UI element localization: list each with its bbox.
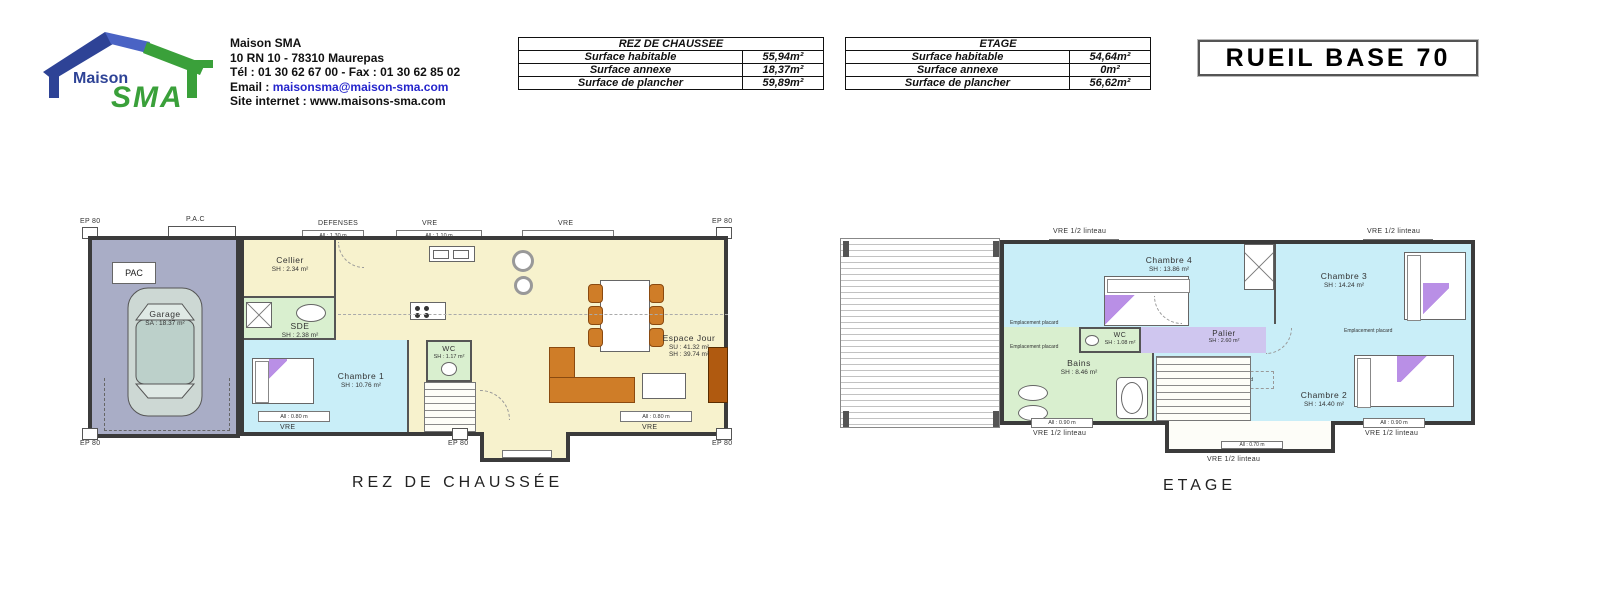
placard-label: Emplacement placard — [1010, 320, 1058, 326]
blanket-accent — [1397, 356, 1431, 382]
room-area: SH : 1.17 m² — [428, 354, 470, 360]
cellier-label: Cellier SH : 2.34 m² — [252, 256, 328, 273]
bed-icon — [252, 358, 314, 404]
row-label: Surface de plancher — [846, 77, 1070, 90]
row-label: Surface habitable — [846, 51, 1070, 64]
pac-unit-box: PAC — [112, 262, 156, 284]
row-value: 54,64m² — [1070, 51, 1151, 64]
company-name: Maison SMA — [230, 36, 490, 51]
wc-etage-label: WC SH : 1.08 m² — [1099, 332, 1141, 346]
garage-roof-hatch — [840, 238, 1000, 428]
light-fixture-icon — [512, 250, 534, 272]
bed-icon — [1404, 252, 1466, 320]
email-address: maisonsma@maison-sma.com — [273, 80, 449, 94]
room-area: SH : 13.86 m² — [1119, 266, 1219, 273]
tv-cabinet-icon — [708, 347, 728, 403]
stair-landing-bump: All : 0.70 m — [1165, 421, 1335, 453]
garage-room: PAC Garage SA : 18.37 m² — [88, 236, 240, 438]
room-name: Chambre 1 — [316, 372, 406, 382]
wc-room-etage: WC SH : 1.08 m² — [1079, 327, 1141, 353]
dining-table-icon — [600, 280, 650, 352]
stove-icon — [410, 302, 446, 320]
placard-label: Emplacement placard — [1344, 328, 1392, 334]
pillow-icon — [255, 361, 269, 403]
room-area: SH : 10.76 m² — [316, 382, 406, 389]
ep80-label: EP 80 — [448, 440, 468, 447]
chair-icon — [588, 284, 603, 303]
palier-room: Palier SH : 2.60 m² — [1141, 327, 1266, 353]
palier-label: Palier SH : 2.60 m² — [1189, 329, 1259, 345]
shower-icon — [246, 302, 272, 328]
chair-icon — [649, 284, 664, 303]
driveway-dashed — [104, 378, 230, 431]
ground-floor-plan: EP 80 P.A.C DEFENSES All : 1.30 m VRE Al… — [80, 218, 740, 458]
site-url: www.maisons-sma.com — [310, 94, 446, 108]
row-value: 0m² — [1070, 64, 1151, 77]
room-area: SH : 14.24 m² — [1294, 282, 1394, 289]
room-name: Chambre 4 — [1119, 256, 1219, 266]
logo-house-icon: Maison SMA — [35, 20, 230, 108]
row-label: Surface habitable — [519, 51, 743, 64]
sde-room: SDE SH : 2.38 m² — [244, 298, 336, 340]
post-marker — [843, 241, 849, 257]
dashed-guide — [338, 314, 728, 315]
wc-room: WC SH : 1.17 m² — [426, 340, 472, 382]
door-swing — [480, 390, 510, 420]
sde-label: SDE SH : 2.38 m² — [270, 322, 330, 339]
entry-door — [502, 450, 552, 458]
room-name: WC — [428, 345, 470, 354]
post-marker — [993, 241, 999, 257]
blanket-accent — [269, 359, 287, 381]
surface-table-etage: ETAGE Surface habitable54,64m² Surface a… — [845, 37, 1151, 90]
room-area: SH : 2.34 m² — [252, 266, 328, 273]
corner-marker — [452, 428, 468, 440]
chambre4-label: Chambre 4 SH : 13.86 m² — [1119, 256, 1219, 273]
staircase-etage — [1156, 356, 1251, 421]
chambre4-room: Chambre 4 SH : 13.86 m² — [1004, 244, 1274, 327]
burner — [424, 306, 429, 311]
ground-floor-caption: REZ DE CHAUSSÉE — [352, 474, 563, 492]
defenses-label: DEFENSES — [318, 220, 358, 227]
company-logo: Maison SMA — [35, 20, 230, 108]
company-info: Maison SMA 10 RN 10 - 78310 Maurepas Tél… — [230, 36, 490, 109]
vre-linteau-label: VRE 1/2 linteau — [1367, 228, 1420, 235]
row-value: 18,37m² — [743, 64, 824, 77]
row-value: 55,94m² — [743, 51, 824, 64]
ep80-label: EP 80 — [80, 218, 100, 225]
company-phone-fax: Tél : 01 30 62 67 00 - Fax : 01 30 62 85… — [230, 65, 490, 80]
site-label: Site internet : — [230, 94, 310, 108]
chambre3-label: Chambre 3 SH : 14.24 m² — [1294, 272, 1394, 289]
pillow-icon — [1357, 358, 1371, 408]
ep80-label: EP 80 — [712, 218, 732, 225]
company-site-line: Site internet : www.maisons-sma.com — [230, 94, 490, 109]
etage-plan: VRE 1/2 linteau All : 0.90 m VRE 1/2 lin… — [835, 228, 1495, 473]
room-area: SH : 1.08 m² — [1099, 340, 1141, 346]
vre-linteau-label: VRE 1/2 linteau — [1207, 456, 1260, 463]
staircase — [424, 382, 476, 432]
window: All : 0.90 m — [1363, 418, 1425, 428]
light-fixture-icon — [514, 276, 533, 295]
email-label: Email : — [230, 80, 273, 94]
door-swing — [1266, 328, 1292, 354]
chair-icon — [649, 306, 664, 325]
room-name: SDE — [270, 322, 330, 332]
logo-brand-main: SMA — [111, 81, 184, 108]
bains-room: Bains SH : 8.46 m² — [1004, 353, 1154, 421]
window-size: All : 0.90 m — [1380, 420, 1408, 426]
vre-label: VRE — [558, 220, 573, 227]
row-label: Surface annexe — [846, 64, 1070, 77]
row-label: Surface annexe — [519, 64, 743, 77]
washbasin-icon — [1018, 385, 1048, 401]
vre-label: VRE — [642, 424, 657, 431]
window-size: All : 0.70 m — [1239, 442, 1264, 448]
pillow-icon — [1407, 255, 1421, 321]
room-name: Chambre 3 — [1294, 272, 1394, 282]
row-value: 59,89m² — [743, 77, 824, 90]
sofa-icon — [549, 377, 635, 403]
window-size: All : 0.80 m — [642, 414, 670, 420]
washbasin-icon — [296, 304, 326, 322]
company-email-line: Email : maisonsma@maison-sma.com — [230, 80, 490, 95]
bains-label: Bains SH : 8.46 m² — [1044, 359, 1114, 376]
table-title: ETAGE — [846, 38, 1151, 51]
bathtub-icon — [1116, 377, 1148, 419]
post-marker — [843, 411, 849, 427]
house-block: Cellier SH : 2.34 m² SDE SH : 2.38 m² — [240, 236, 728, 436]
wc-label: WC SH : 1.17 m² — [428, 345, 470, 360]
plan-title: RUEIL BASE 70 — [1198, 40, 1478, 76]
vre-label: VRE — [280, 424, 295, 431]
closet-icon — [1244, 244, 1274, 290]
window: All : 0.80 m — [620, 411, 692, 422]
toilet-icon — [1085, 335, 1099, 346]
toilet-icon — [441, 362, 457, 376]
surface-table-rdc: REZ DE CHAUSSEE Surface habitable55,94m²… — [518, 37, 824, 90]
window-size: All : 0.80 m — [280, 414, 308, 420]
page: Maison SMA Maison SMA 10 RN 10 - 78310 M… — [0, 0, 1600, 600]
chair-icon — [588, 306, 603, 325]
vre-linteau-label: VRE 1/2 linteau — [1033, 430, 1086, 437]
blanket-accent — [1105, 295, 1135, 325]
row-label: Surface de plancher — [519, 77, 743, 90]
company-address: 10 RN 10 - 78310 Maurepas — [230, 51, 490, 66]
kitchen-sink-icon — [429, 246, 475, 262]
room-name: WC — [1099, 332, 1141, 340]
pillow-icon — [1107, 279, 1190, 293]
room-area: SH : 8.46 m² — [1044, 369, 1114, 376]
window: All : 0.70 m — [1221, 441, 1283, 449]
bed-icon — [1354, 355, 1454, 407]
room-name: Bains — [1044, 359, 1114, 369]
coffee-table-icon — [642, 373, 686, 399]
placard-label: Emplacement placard — [1010, 344, 1058, 350]
chair-icon — [588, 328, 603, 347]
sink-bowl — [433, 250, 449, 259]
blanket-accent — [1423, 283, 1449, 319]
window-size: All : 0.90 m — [1048, 420, 1076, 426]
chambre3-room: Chambre 3 SH : 14.24 m² — [1274, 244, 1471, 324]
post-marker — [993, 411, 999, 427]
vre-linteau-label: VRE 1/2 linteau — [1365, 430, 1418, 437]
chambre1-label: Chambre 1 SH : 10.76 m² — [316, 372, 406, 389]
table-title: REZ DE CHAUSSEE — [519, 38, 824, 51]
corner-marker — [82, 428, 98, 440]
ep80-label: EP 80 — [712, 440, 732, 447]
room-area: SH : 2.60 m² — [1189, 338, 1259, 344]
sink-bowl — [453, 250, 469, 259]
corner-marker — [716, 428, 732, 440]
row-value: 56,62m² — [1070, 77, 1151, 90]
pac-top-label: P.A.C — [186, 216, 205, 223]
room-name: Cellier — [252, 256, 328, 266]
window: All : 0.90 m — [1031, 418, 1093, 428]
etage-caption: ETAGE — [1163, 477, 1236, 495]
ep80-label: EP 80 — [80, 440, 100, 447]
etage-house-block: Chambre 4 SH : 13.86 m² Chambre 3 SH : 1… — [1000, 240, 1475, 425]
burner — [415, 306, 420, 311]
room-area: SH : 2.38 m² — [270, 332, 330, 339]
cellier-room: Cellier SH : 2.34 m² — [244, 240, 336, 298]
bathtub-inner — [1121, 382, 1143, 414]
window: All : 0.80 m — [258, 411, 330, 422]
vre-label: VRE — [422, 220, 437, 227]
room-name: Palier — [1189, 329, 1259, 338]
vre-linteau-label: VRE 1/2 linteau — [1053, 228, 1106, 235]
entry-porch — [480, 432, 570, 462]
door-swing — [338, 242, 364, 268]
chair-icon — [649, 328, 664, 347]
